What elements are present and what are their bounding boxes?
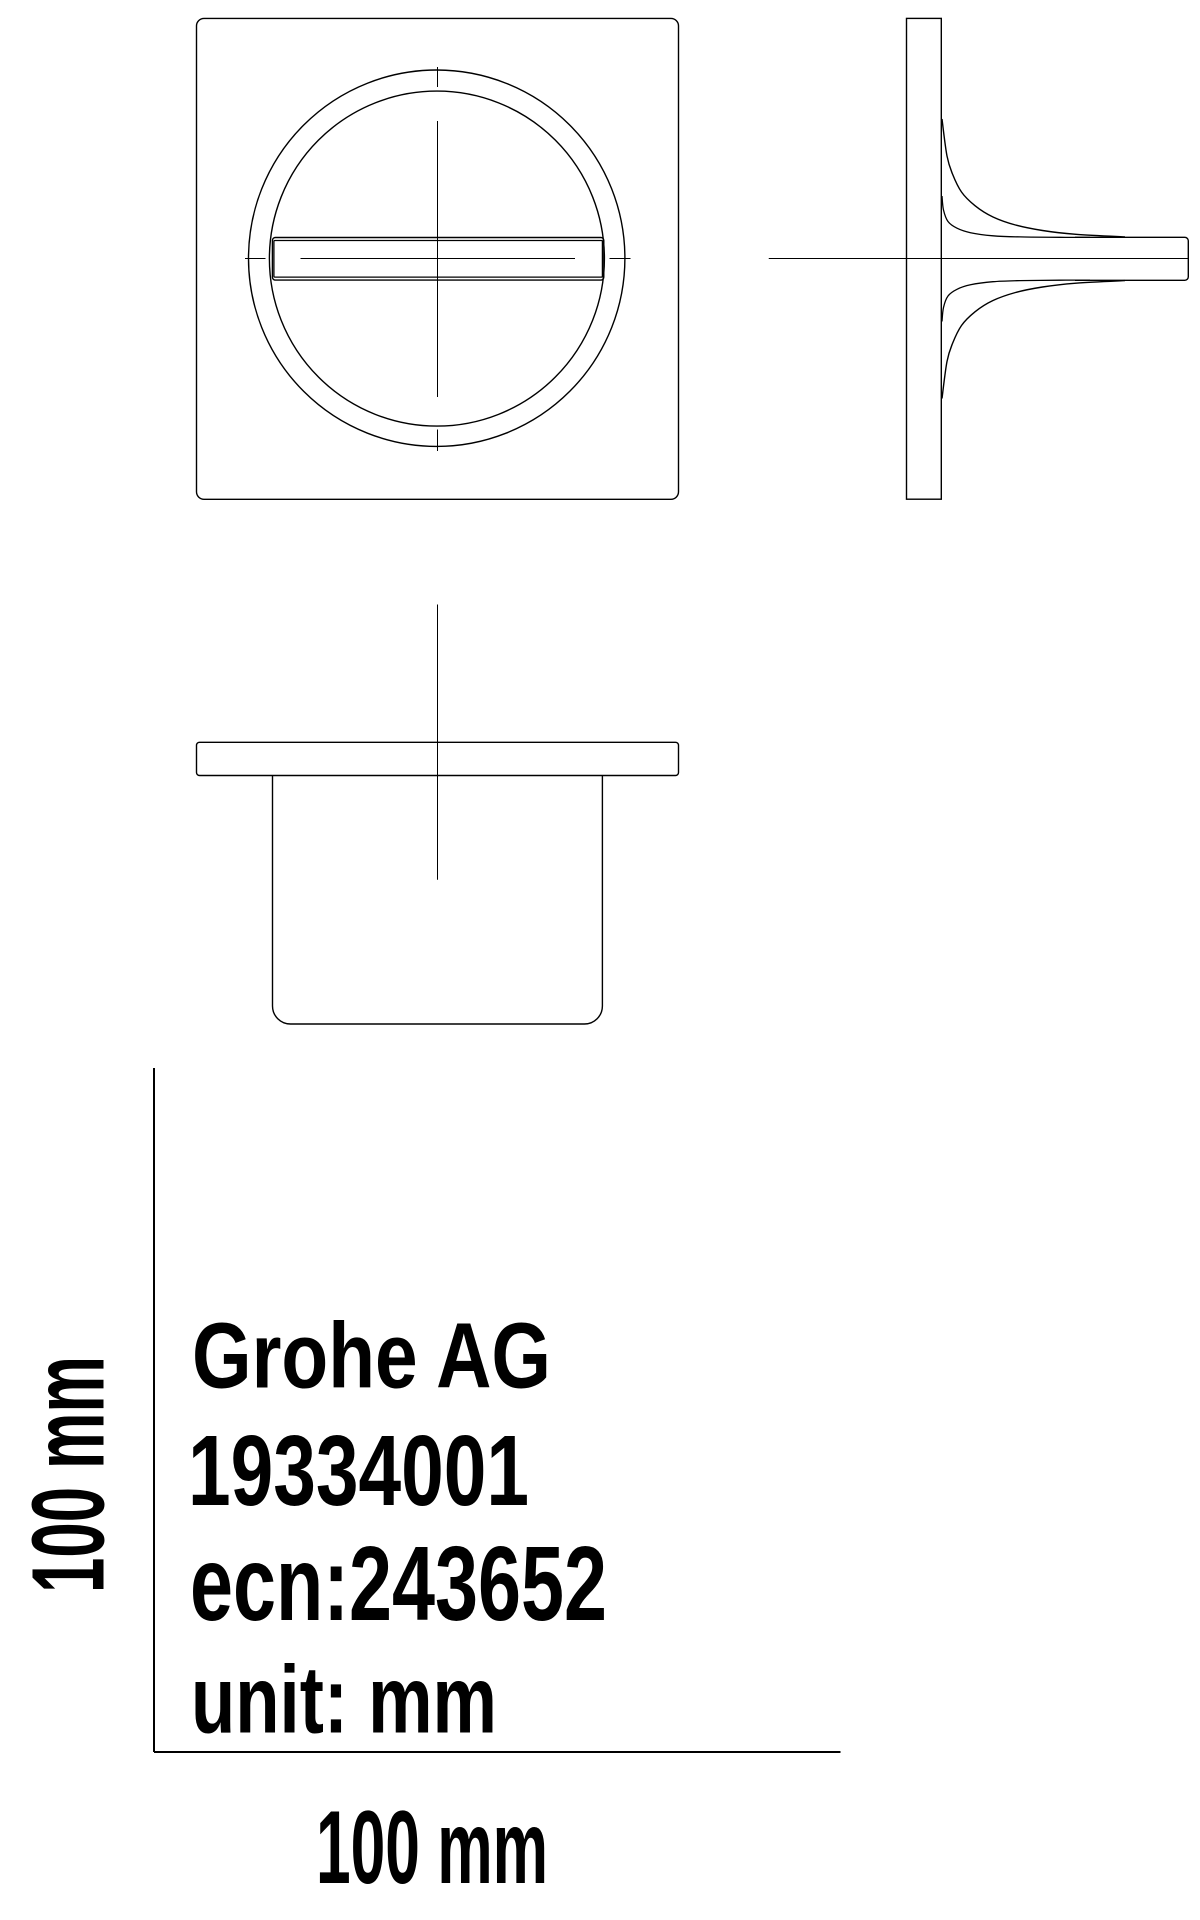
svg-text:100 mm: 100 mm [10, 1356, 125, 1593]
svg-text:unit: mm: unit: mm [191, 1647, 497, 1754]
svg-text:100 mm: 100 mm [316, 1790, 548, 1906]
svg-text:19334001: 19334001 [188, 1415, 529, 1527]
svg-text:Grohe AG: Grohe AG [192, 1304, 551, 1408]
svg-text:ecn:243652: ecn:243652 [190, 1525, 607, 1643]
